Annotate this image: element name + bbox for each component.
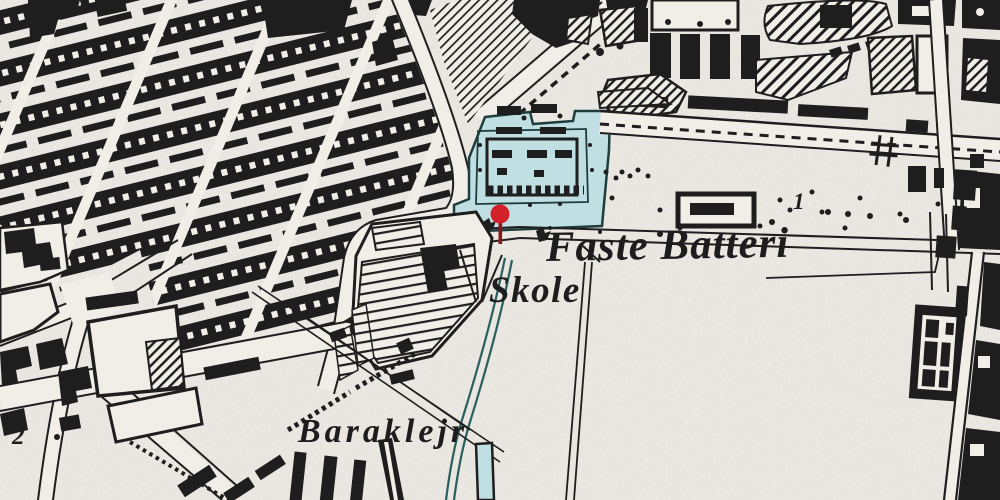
svg-text:Baraklejr: Baraklejr — [297, 413, 468, 450]
svg-text:2: 2 — [11, 423, 25, 450]
svg-text:Faste Batteri: Faste Batteri — [544, 220, 789, 271]
svg-text:1: 1 — [793, 189, 805, 214]
svg-text:Skole: Skole — [489, 270, 581, 311]
